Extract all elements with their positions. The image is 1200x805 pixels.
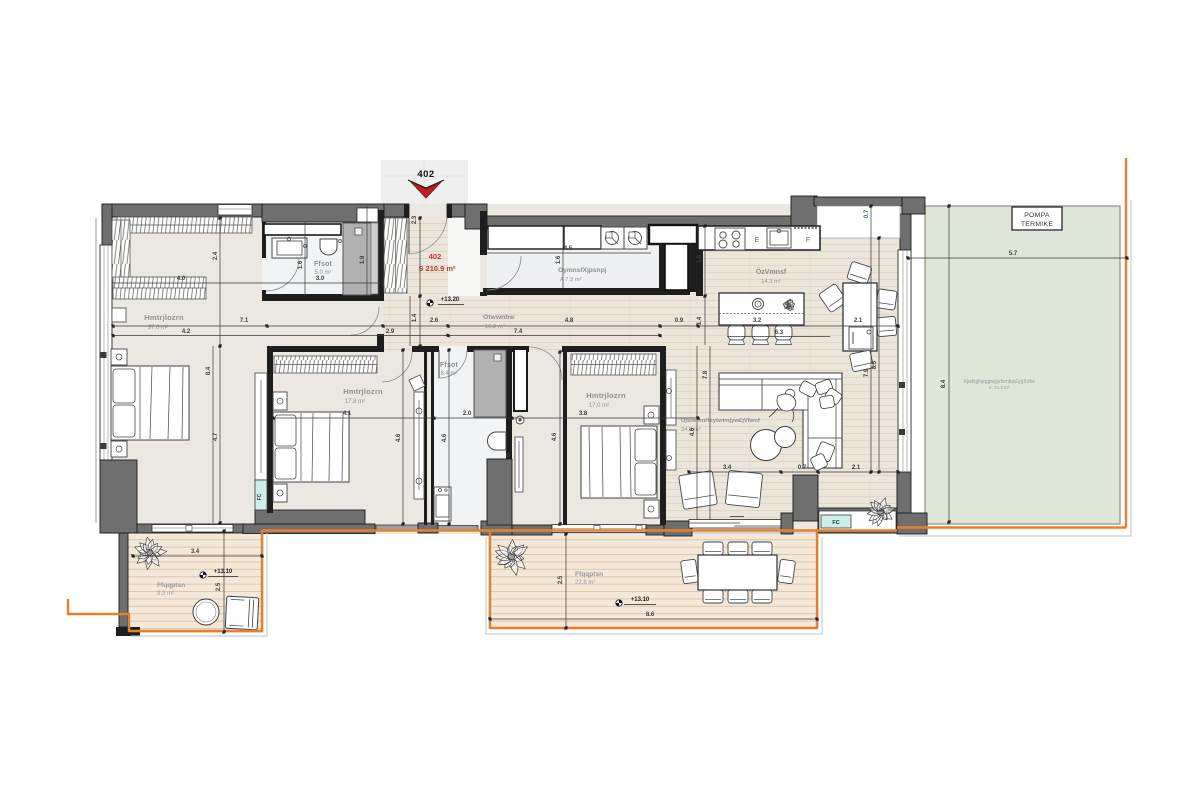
svg-text:F: F <box>806 237 810 244</box>
svg-text:+13.10: +13.10 <box>631 597 650 603</box>
svg-text:8.6: 8.6 <box>646 612 655 618</box>
svg-text:2.5: 2.5 <box>558 575 564 584</box>
svg-text:Hmtrjlozrn: Hmtrjlozrn <box>586 391 626 400</box>
svg-text:4.6: 4.6 <box>552 432 558 441</box>
svg-text:+13.10: +13.10 <box>214 569 233 575</box>
svg-text:3.4: 3.4 <box>723 465 732 471</box>
svg-text:2.1: 2.1 <box>852 465 861 471</box>
svg-text:402: 402 <box>429 252 442 261</box>
svg-text:4.1: 4.1 <box>343 411 352 417</box>
svg-text:Ffqqptsn: Ffqqptsn <box>157 582 185 589</box>
svg-text:3.8: 3.8 <box>579 411 588 417</box>
svg-text:4.2: 4.2 <box>182 329 191 335</box>
svg-text:S: 51.3 m²: S: 51.3 m² <box>989 385 1010 390</box>
svg-text:OymnsfXjpsnpj: OymnsfXjpsnpj <box>558 267 607 274</box>
svg-text:1.9: 1.9 <box>360 255 366 264</box>
svg-text:16.2 m²: 16.2 m² <box>485 324 505 330</box>
svg-text:UjsiwmnHeytwimjyw£jVfwnf: UjsiwmnHeytwimjyw£jVfwnf <box>681 418 760 424</box>
svg-text:17.8 m²: 17.8 m² <box>345 399 365 405</box>
svg-text:E: E <box>755 237 760 244</box>
svg-text:2.9: 2.9 <box>386 329 395 335</box>
svg-text:8.4: 8.4 <box>206 366 212 375</box>
svg-text:TERMIKE: TERMIKE <box>1021 221 1053 228</box>
svg-text:3.2: 3.2 <box>753 318 762 324</box>
svg-text:8.4: 8.4 <box>941 379 947 388</box>
svg-text:402: 402 <box>417 169 434 180</box>
svg-text:Ffsot: Ffsot <box>314 261 333 268</box>
svg-text:1.6: 1.6 <box>556 255 562 264</box>
svg-text:8.5: 8.5 <box>872 360 878 369</box>
svg-text:4.6: 4.6 <box>690 427 696 436</box>
svg-text:7.9: 7.9 <box>864 368 870 377</box>
svg-text:FC: FC <box>832 520 839 526</box>
svg-text:4.7: 4.7 <box>213 432 219 441</box>
svg-text:1.6: 1.6 <box>298 260 304 269</box>
svg-text:2.3: 2.3 <box>412 215 418 224</box>
svg-text:FC: FC <box>257 493 263 500</box>
svg-text:9.3 m²: 9.3 m² <box>157 591 174 597</box>
svg-text:+13.20: +13.20 <box>441 297 460 303</box>
svg-text:7.1: 7.1 <box>240 318 249 324</box>
svg-text:1.4: 1.4 <box>412 313 418 322</box>
svg-text:0.9: 0.9 <box>675 318 684 324</box>
svg-text:Hmtrjlozrn: Hmtrjlozrn <box>144 313 184 322</box>
svg-text:4.6: 4.6 <box>442 433 448 442</box>
svg-text:7.4: 7.4 <box>514 329 523 335</box>
svg-text:2.6: 2.6 <box>430 318 439 324</box>
svg-text:2.1: 2.1 <box>854 318 863 324</box>
svg-text:4.8: 4.8 <box>565 318 574 324</box>
svg-text:S 210.9 m²: S 210.9 m² <box>418 264 456 273</box>
svg-text:17.0 m²: 17.0 m² <box>589 403 609 409</box>
svg-text:6.3: 6.3 <box>775 330 784 336</box>
svg-text:Hmtrjlozrn: Hmtrjlozrn <box>343 387 383 396</box>
svg-text:0.7: 0.7 <box>864 209 870 218</box>
svg-text:2.0: 2.0 <box>463 411 472 417</box>
svg-text:POMPA: POMPA <box>1024 212 1050 219</box>
svg-text:7.8: 7.8 <box>703 370 709 379</box>
svg-text:3.0: 3.0 <box>316 276 325 282</box>
svg-text:22.8 m²: 22.8 m² <box>575 580 595 586</box>
svg-text:5.7: 5.7 <box>1009 251 1018 257</box>
svg-text:1.4: 1.4 <box>697 316 703 325</box>
svg-text:1.8: 1.8 <box>697 254 703 263</box>
svg-text:14.3 m²: 14.3 m² <box>761 279 781 285</box>
svg-text:3.4: 3.4 <box>191 549 200 555</box>
svg-text:4.0: 4.0 <box>177 276 186 282</box>
svg-text:4.6: 4.6 <box>396 433 402 442</box>
svg-text:2.4: 2.4 <box>213 251 219 260</box>
svg-text:0.7: 0.7 <box>798 465 807 471</box>
svg-text:ÖzVmnsf: ÖzVmnsf <box>756 267 787 276</box>
svg-text:Ffqqptsn: Ffqqptsn <box>575 571 603 578</box>
svg-text:4.5: 4.5 <box>564 246 573 252</box>
svg-text:Otwwnbw: Otwwnbw <box>483 314 515 321</box>
svg-text:2.5: 2.5 <box>216 582 222 591</box>
